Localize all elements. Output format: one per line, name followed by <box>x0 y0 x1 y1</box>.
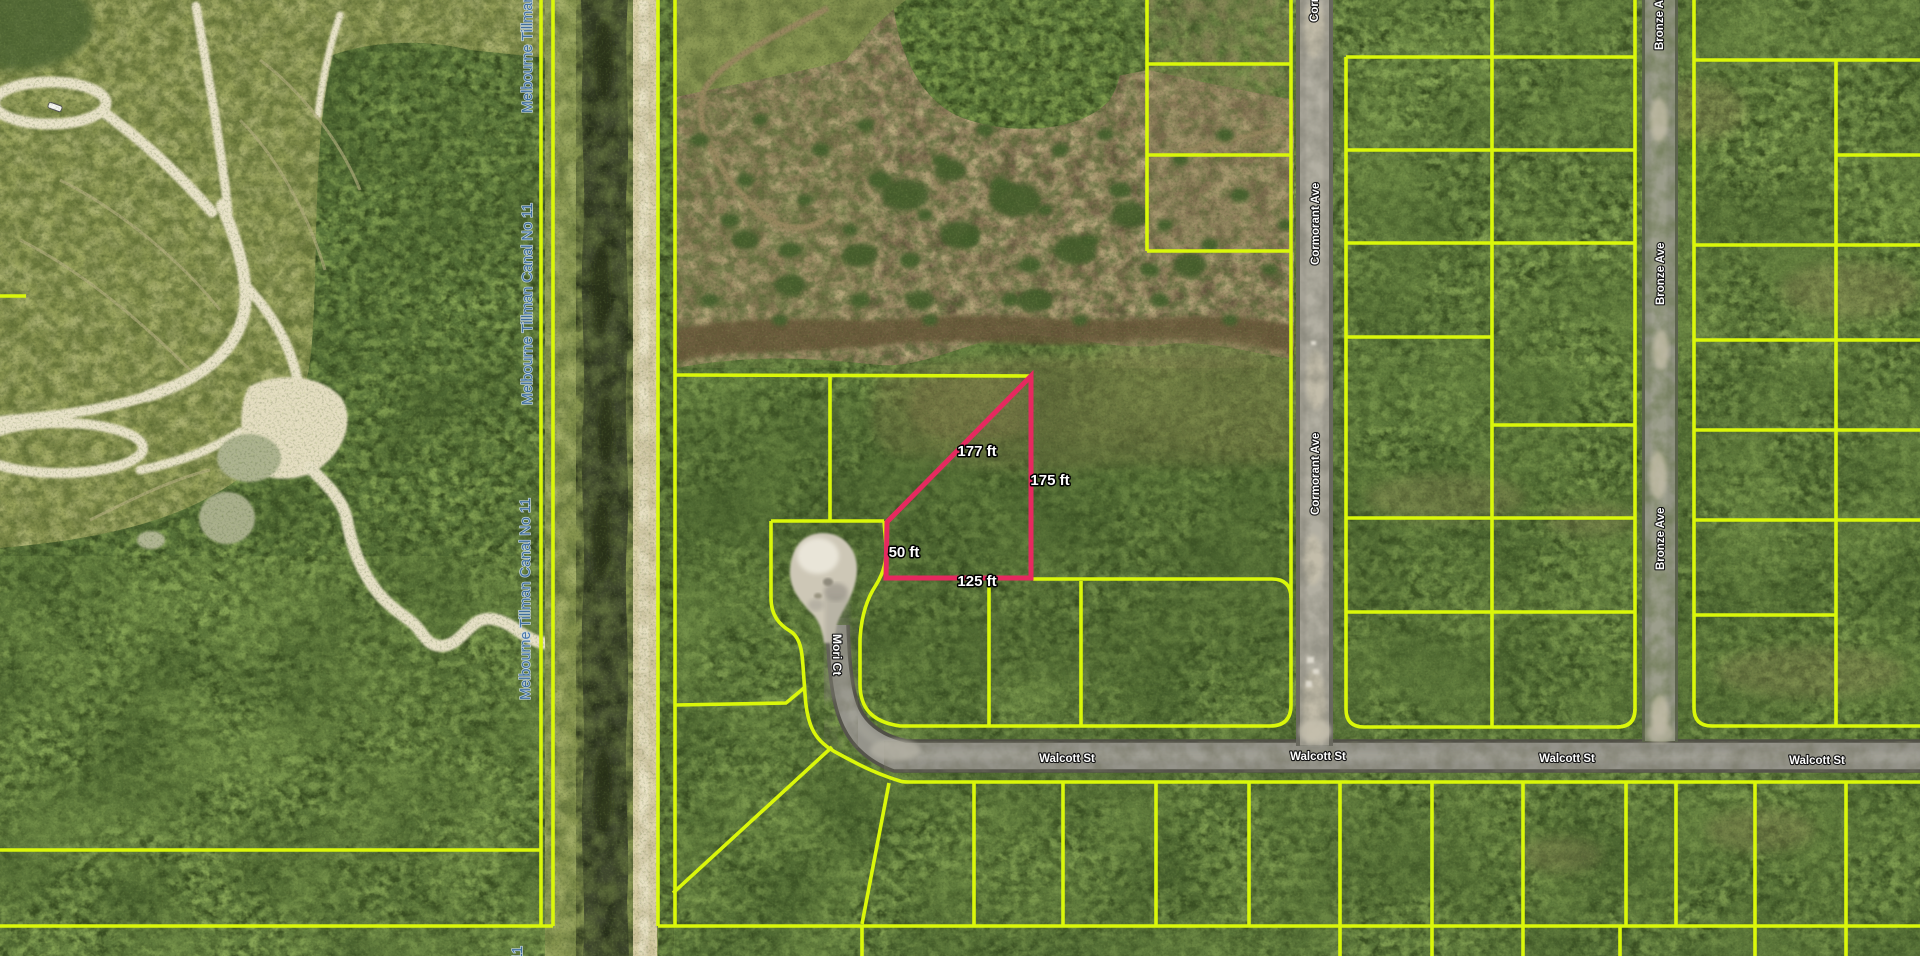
svg-text:Melbourne Tillman Canal No 11: Melbourne Tillman Canal No 11 <box>518 498 534 700</box>
svg-text:175 ft: 175 ft <box>1030 472 1069 489</box>
svg-text:Bronze Ave: Bronze Ave <box>1655 243 1667 305</box>
svg-text:177 ft: 177 ft <box>957 443 996 460</box>
svg-text:Walcott St: Walcott St <box>1789 755 1845 767</box>
svg-text:Mori Ct: Mori Ct <box>830 634 844 675</box>
svg-text:Walcott St: Walcott St <box>1290 751 1346 763</box>
svg-text:Walcott St: Walcott St <box>1039 753 1095 765</box>
svg-text:Melbourne Tillman Canal No 11: Melbourne Tillman Canal No 11 <box>520 0 536 113</box>
svg-text:Melbourne Tillman Canal No 11: Melbourne Tillman Canal No 11 <box>510 946 526 956</box>
svg-text:Cormorant Ave: Cormorant Ave <box>1309 0 1321 22</box>
svg-text:125 ft: 125 ft <box>957 573 996 590</box>
svg-text:Bronze Ave: Bronze Ave <box>1655 508 1667 570</box>
svg-text:50 ft: 50 ft <box>889 544 920 561</box>
svg-text:Cormorant Ave: Cormorant Ave <box>1310 433 1322 515</box>
svg-text:Walcott St: Walcott St <box>1539 753 1595 765</box>
svg-text:Bronze Ave: Bronze Ave <box>1654 0 1666 50</box>
svg-text:Melbourne Tillman Canal No 11: Melbourne Tillman Canal No 11 <box>520 203 536 405</box>
svg-text:Cormorant Ave: Cormorant Ave <box>1310 183 1322 265</box>
